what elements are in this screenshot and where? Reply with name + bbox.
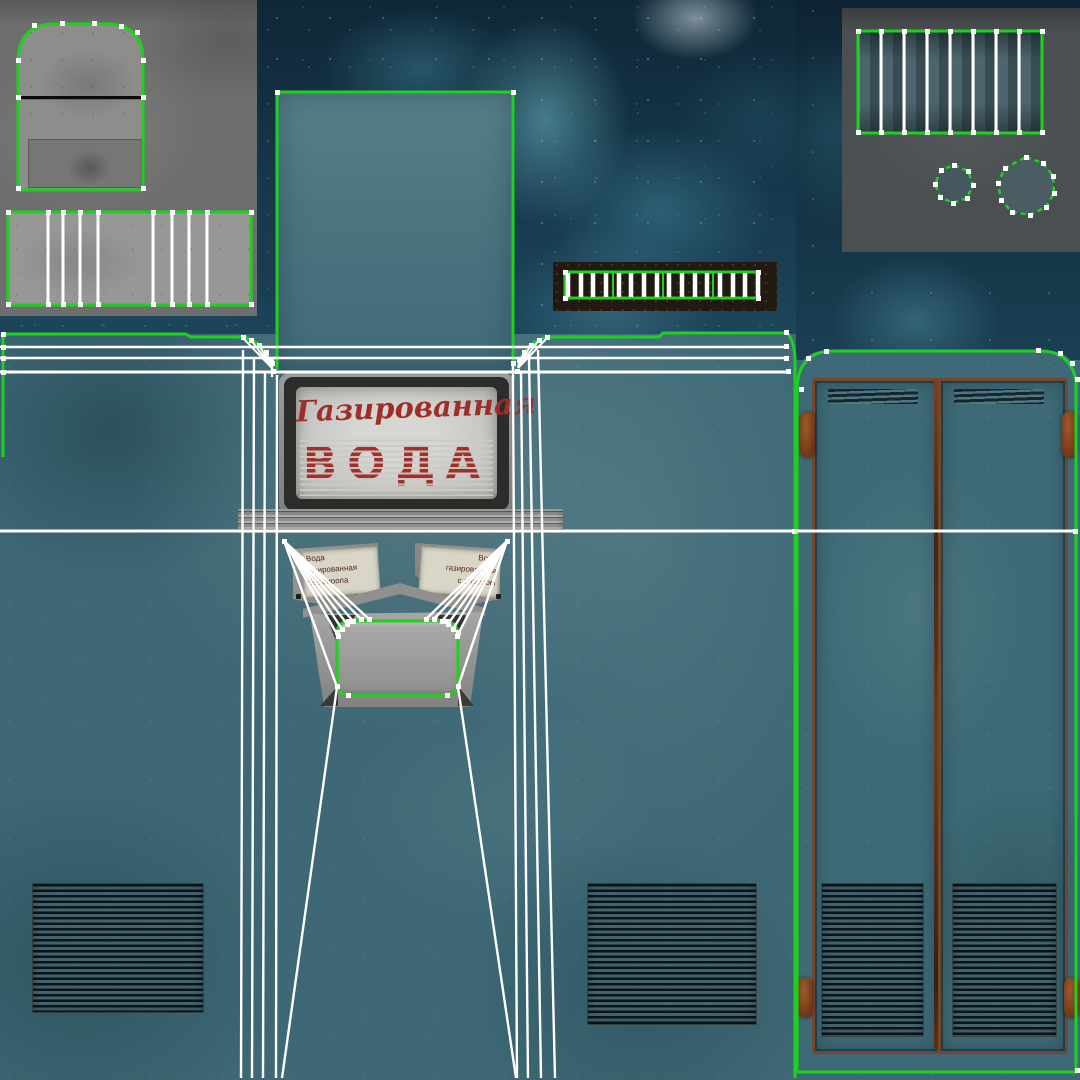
instruction-label-left: Вода газированная без сиропа <box>301 546 380 597</box>
plate-bolt-left <box>296 594 301 599</box>
door-hinge-top-left <box>800 412 815 458</box>
door-center-gap <box>934 378 938 1048</box>
sign-text-script: Газированная <box>295 388 497 441</box>
door-right-grille <box>953 884 1056 1036</box>
door-hinge-top-right <box>1062 412 1077 458</box>
door-hinge-bottom-right <box>1064 978 1079 1018</box>
uv-island-cabinet-top <box>277 92 513 372</box>
uv-island-cup-area <box>337 621 458 696</box>
floor-grille-middle <box>588 884 756 1024</box>
lid-inset-rect <box>28 139 142 188</box>
sign-ribbed-ledge <box>238 509 563 533</box>
lid-divider-line <box>18 96 144 99</box>
floor-grille-left <box>33 884 203 1012</box>
door-left-vent <box>828 389 918 404</box>
instruction-label-right: Вода газированная с сиропом <box>418 546 501 597</box>
uv-island-coin-grille <box>553 262 777 311</box>
sign-voda-stripes <box>300 436 493 496</box>
door-right-vent <box>954 389 1044 404</box>
uv-island-side-vent <box>858 31 1042 133</box>
uv-island-front-grille-bake <box>8 212 251 305</box>
plate-bolt-right <box>496 594 501 599</box>
door-hinge-bottom-left <box>798 978 813 1018</box>
uv-texture-canvas[interactable]: Газированная ВОДА Вода газированная без … <box>0 0 1080 1080</box>
door-left-grille <box>822 884 923 1036</box>
